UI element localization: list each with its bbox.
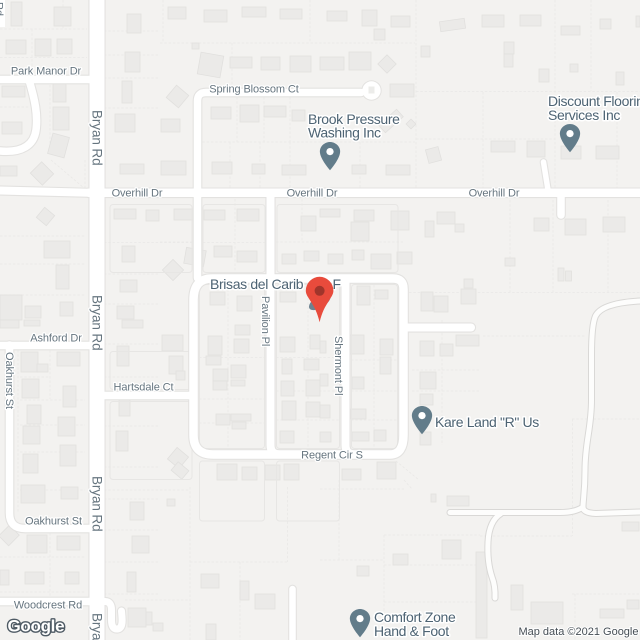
svg-text:Woodcrest Rd: Woodcrest Rd	[14, 600, 82, 612]
svg-text:Bryan Rd: Bryan Rd	[90, 295, 105, 350]
svg-text:Google: Google	[8, 617, 65, 636]
svg-text:Rd: Rd	[0, 2, 5, 16]
svg-text:F: F	[333, 276, 341, 292]
svg-text:Overhill Dr: Overhill Dr	[112, 188, 163, 200]
svg-text:Washing Inc: Washing Inc	[308, 125, 381, 141]
svg-text:Bryan Rd: Bryan Rd	[90, 613, 105, 640]
svg-text:Pavilion Pl: Pavilion Pl	[259, 296, 271, 346]
svg-text:Oakhurst St: Oakhurst St	[25, 516, 82, 528]
svg-text:Regent Cir S: Regent Cir S	[301, 450, 363, 462]
svg-text:Map data ©2021 Google: Map data ©2021 Google	[518, 626, 638, 638]
svg-text:Overhill Dr: Overhill Dr	[287, 188, 338, 200]
svg-text:Hand & Foot: Hand & Foot	[374, 623, 449, 639]
svg-text:Bryan Rd: Bryan Rd	[90, 110, 105, 165]
svg-text:Kare Land "R" Us: Kare Land "R" Us	[435, 414, 539, 430]
svg-text:Shermont Pl: Shermont Pl	[332, 336, 344, 395]
svg-text:Brisas del Carib: Brisas del Carib	[210, 276, 304, 292]
svg-text:Park Manor Dr: Park Manor Dr	[11, 66, 82, 78]
svg-text:Bryan Rd: Bryan Rd	[90, 476, 105, 531]
svg-text:Services Inc: Services Inc	[548, 107, 620, 123]
svg-text:Overhill Dr: Overhill Dr	[469, 188, 520, 200]
svg-text:Hartsdale Ct: Hartsdale Ct	[114, 382, 174, 394]
svg-text:Oakhurst St: Oakhurst St	[3, 352, 15, 409]
svg-text:Ashford Dr: Ashford Dr	[30, 333, 82, 345]
svg-text:Spring Blossom Ct: Spring Blossom Ct	[209, 84, 298, 96]
